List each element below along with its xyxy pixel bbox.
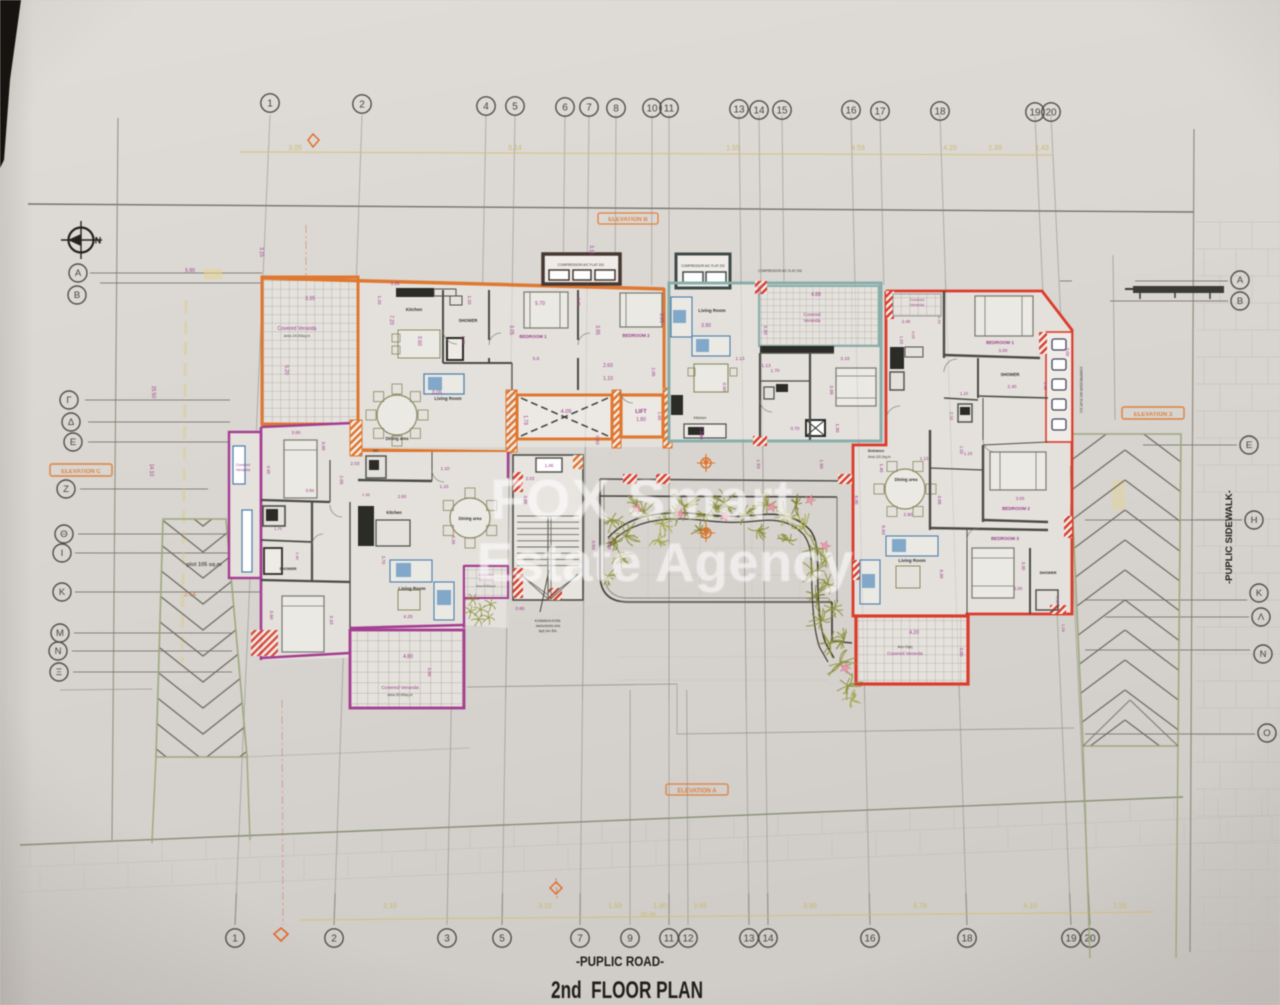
svg-text:4.59: 4.59 [851, 145, 865, 152]
svg-text:Dining area: Dining area [386, 436, 409, 441]
svg-text:2.05: 2.05 [339, 476, 344, 485]
svg-text:Covered: Covered [236, 463, 250, 467]
svg-text:3.15: 3.15 [588, 245, 594, 255]
svg-text:FOX Smart: FOX Smart [490, 468, 794, 532]
svg-text:3.90: 3.90 [701, 323, 711, 329]
svg-text:τιμή του 30ε.: τιμή του 30ε. [538, 629, 557, 633]
svg-text:3.15: 3.15 [258, 247, 264, 257]
svg-text:3: 3 [444, 933, 450, 944]
svg-text:4.80: 4.80 [403, 654, 413, 660]
svg-text:plot 105 sq.m: plot 105 sq.m [186, 562, 221, 568]
svg-text:35.34: 35.34 [640, 912, 656, 918]
svg-text:16: 16 [845, 105, 857, 116]
svg-text:5.14: 5.14 [508, 145, 522, 152]
svg-text:0.90: 0.90 [722, 383, 727, 392]
svg-text:1.50: 1.50 [608, 903, 622, 910]
svg-text:2nd FLOOR PLAN: 2nd FLOOR PLAN [551, 977, 703, 1004]
svg-text:3.70: 3.70 [381, 556, 386, 565]
svg-text:13: 13 [743, 933, 755, 944]
svg-text:19: 19 [1065, 933, 1077, 944]
svg-text:11: 11 [664, 933, 675, 944]
svg-text:M: M [56, 628, 64, 639]
svg-text:3.35: 3.35 [391, 281, 400, 286]
svg-text:1: 1 [267, 98, 273, 109]
svg-text:7.20: 7.20 [388, 315, 394, 325]
svg-text:11: 11 [664, 103, 675, 114]
svg-text:3.88: 3.88 [937, 496, 942, 505]
svg-text:9: 9 [627, 933, 633, 944]
svg-text:4.09: 4.09 [561, 409, 572, 415]
svg-text:5.20: 5.20 [283, 365, 289, 375]
svg-text:A: A [75, 268, 82, 279]
svg-text:3.05: 3.05 [576, 298, 581, 307]
svg-text:3.60: 3.60 [269, 611, 274, 620]
svg-text:1.65: 1.65 [657, 412, 662, 421]
svg-text:Θ: Θ [60, 529, 67, 540]
svg-text:ELEVATION C: ELEVATION C [61, 469, 101, 475]
svg-text:SHOWER: SHOWER [1039, 571, 1056, 575]
svg-text:3.30: 3.30 [762, 325, 768, 335]
svg-text:3.10: 3.10 [329, 616, 334, 625]
svg-text:BEDROOM 2: BEDROOM 2 [1002, 506, 1030, 511]
svg-text:1.90: 1.90 [818, 459, 824, 469]
svg-text:15: 15 [776, 105, 788, 116]
svg-text:1.90: 1.90 [653, 903, 667, 910]
svg-text:ΚΛΙΜΑΚΑ ΚΟΙΝ.: ΚΛΙΜΑΚΑ ΚΟΙΝ. [535, 619, 561, 623]
svg-text:3.00: 3.00 [959, 648, 964, 657]
svg-text:14: 14 [762, 933, 774, 944]
svg-text:Γ: Γ [66, 395, 71, 406]
svg-text:2.46: 2.46 [902, 319, 911, 324]
svg-text:WC: WC [373, 449, 380, 453]
svg-text:2.03: 2.03 [351, 461, 360, 466]
svg-text:2: 2 [331, 933, 337, 944]
svg-text:I: I [61, 548, 64, 559]
svg-text:0.95: 0.95 [266, 466, 271, 475]
svg-text:E: E [1246, 440, 1252, 451]
svg-text:3.30: 3.30 [1014, 586, 1023, 591]
svg-text:A: A [1237, 275, 1244, 286]
svg-text:17: 17 [874, 106, 886, 117]
svg-text:-PUPLIC SIDEWALK-: -PUPLIC SIDEWALK- [1224, 490, 1235, 584]
svg-text:1.70: 1.70 [771, 368, 780, 373]
svg-text:SHOWER: SHOWER [1001, 372, 1020, 377]
svg-text:Covered Veranda: Covered Veranda [381, 685, 419, 691]
svg-text:Living Room: Living Room [698, 308, 725, 313]
svg-text:BEDROOM 1: BEDROOM 1 [519, 334, 547, 339]
svg-text:Z: Z [63, 484, 69, 495]
svg-text:Veranda: Veranda [236, 468, 251, 472]
svg-text:K: K [1256, 588, 1263, 599]
svg-text:1: 1 [232, 933, 238, 944]
svg-text:0.60: 0.60 [416, 336, 422, 346]
svg-text:Living Room: Living Room [398, 586, 425, 591]
svg-text:N: N [1260, 649, 1267, 660]
svg-text:COMPRESSOR A/C FLAT 201: COMPRESSOR A/C FLAT 201 [558, 263, 605, 267]
svg-text:3.90: 3.90 [803, 903, 817, 910]
svg-text:1.65: 1.65 [899, 336, 904, 345]
svg-text:5: 5 [512, 101, 518, 112]
svg-text:3.05: 3.05 [658, 313, 664, 323]
svg-text:19: 19 [1029, 107, 1041, 118]
svg-text:Living Room: Living Room [898, 558, 925, 563]
svg-text:2.90: 2.90 [904, 512, 913, 517]
svg-text:Kitchen: Kitchen [406, 307, 423, 312]
svg-text:1.10: 1.10 [441, 466, 450, 471]
svg-text:1.35: 1.35 [362, 492, 371, 497]
svg-text:E: E [70, 437, 76, 448]
svg-text:BEDROOM 3: BEDROOM 3 [991, 536, 1019, 541]
svg-text:3.00: 3.00 [321, 442, 326, 451]
svg-text:Kitchen: Kitchen [694, 416, 707, 420]
svg-text:1.40: 1.40 [1043, 382, 1048, 391]
svg-text:5: 5 [499, 933, 505, 944]
svg-text:N: N [95, 236, 102, 246]
svg-text:1.10: 1.10 [440, 484, 449, 489]
svg-text:1.55: 1.55 [1113, 903, 1127, 910]
svg-text:1.55: 1.55 [726, 145, 740, 152]
svg-text:6.60: 6.60 [880, 525, 886, 535]
svg-text:2.05: 2.05 [651, 368, 656, 377]
svg-text:SHOWER: SHOWER [279, 567, 296, 571]
svg-text:Covered Veranda: Covered Veranda [887, 651, 923, 656]
svg-text:3.00: 3.00 [999, 348, 1008, 353]
svg-text:2.40: 2.40 [1008, 384, 1017, 389]
svg-text:1.39: 1.39 [988, 145, 1002, 152]
svg-text:3.30: 3.30 [1021, 562, 1026, 571]
svg-text:BEDROOM 1: BEDROOM 1 [986, 340, 1014, 345]
svg-text:6.36: 6.36 [451, 536, 456, 545]
svg-text:4.25: 4.25 [403, 614, 413, 620]
svg-text:14: 14 [753, 105, 765, 116]
svg-text:B: B [74, 290, 80, 301]
svg-text:0.80: 0.80 [516, 606, 525, 611]
svg-text:18: 18 [961, 933, 973, 944]
svg-text:N: N [55, 646, 62, 657]
svg-text:Estate Agency: Estate Agency [477, 531, 854, 593]
svg-text:4.20: 4.20 [909, 630, 919, 636]
svg-text:2.10: 2.10 [383, 903, 397, 910]
svg-text:3.00: 3.00 [427, 668, 432, 677]
svg-text:1.40: 1.40 [879, 464, 884, 473]
svg-text:1.13: 1.13 [920, 456, 929, 461]
svg-text:0.80: 0.80 [594, 435, 600, 445]
svg-text:1.79: 1.79 [522, 415, 528, 425]
svg-text:H: H [1251, 515, 1258, 526]
svg-text:2.60: 2.60 [398, 494, 407, 499]
svg-text:area 24.00sq.m: area 24.00sq.m [284, 334, 310, 338]
svg-text:COMPRESSOR A/C FLAT 201: COMPRESSOR A/C FLAT 201 [1079, 367, 1083, 414]
svg-text:B: B [1237, 296, 1243, 307]
svg-text:Veranda: Veranda [804, 318, 821, 323]
svg-text:Covered Veranda: Covered Veranda [278, 326, 317, 332]
svg-text:K: K [59, 587, 66, 598]
svg-text:1.50: 1.50 [699, 431, 704, 440]
svg-text:Living Room: Living Room [434, 396, 461, 401]
svg-text:COMPRESSOR A/C FLAT 202: COMPRESSOR A/C FLAT 202 [681, 264, 725, 268]
svg-text:2.20: 2.20 [937, 316, 942, 325]
svg-text:12: 12 [682, 933, 694, 944]
svg-text:Λ: Λ [1258, 612, 1265, 623]
svg-text:ELEVATION 3: ELEVATION 3 [1134, 412, 1173, 418]
svg-text:4.88: 4.88 [811, 292, 821, 298]
svg-text:3.00: 3.00 [1016, 496, 1025, 501]
svg-text:3.10: 3.10 [538, 903, 552, 910]
svg-text:3.55: 3.55 [693, 903, 707, 910]
svg-text:Entrance: Entrance [868, 449, 884, 453]
svg-text:0.05: 0.05 [432, 390, 442, 396]
svg-text:4.20: 4.20 [943, 145, 957, 152]
svg-text:4: 4 [483, 101, 489, 112]
svg-text:14.10: 14.10 [148, 464, 154, 477]
svg-text:3.05: 3.05 [288, 145, 302, 152]
svg-text:6.90: 6.90 [939, 570, 944, 579]
svg-text:7: 7 [577, 933, 583, 944]
svg-text:3.95: 3.95 [594, 325, 600, 335]
svg-text:-PUPLIC ROAD-: -PUPLIC ROAD- [576, 954, 664, 969]
svg-text:3.05: 3.05 [508, 325, 514, 335]
svg-text:8: 8 [613, 103, 619, 114]
svg-text:2.14: 2.14 [184, 592, 196, 598]
svg-text:13: 13 [733, 104, 745, 115]
svg-text:3.15: 3.15 [840, 356, 850, 362]
svg-text:3.60: 3.60 [292, 430, 301, 435]
svg-text:6.90: 6.90 [854, 496, 859, 505]
svg-text:3.00: 3.00 [1065, 348, 1070, 357]
svg-text:Ano Οψη: Ano Οψη [898, 645, 913, 649]
svg-text:Covered: Covered [910, 298, 924, 302]
svg-text:1.80: 1.80 [636, 417, 646, 423]
svg-text:Dining area: Dining area [895, 477, 918, 482]
svg-text:1.13: 1.13 [736, 356, 745, 361]
svg-text:1.43: 1.43 [1035, 145, 1049, 152]
svg-text:Covered: Covered [803, 312, 821, 317]
svg-text:20: 20 [1045, 107, 1057, 118]
svg-text:2: 2 [359, 99, 365, 110]
svg-text:2.50: 2.50 [1055, 596, 1060, 605]
svg-text:Δ: Δ [68, 417, 75, 428]
svg-text:4.10: 4.10 [1023, 903, 1037, 910]
svg-text:Veranda: Veranda [910, 303, 925, 307]
svg-text:Ξ: Ξ [56, 667, 62, 678]
svg-text:Kitchen: Kitchen [386, 510, 402, 515]
svg-text:0.84: 0.84 [306, 488, 315, 493]
svg-text:1.90: 1.90 [461, 336, 466, 345]
svg-text:σκαλοπατία από: σκαλοπατία από [536, 624, 561, 628]
svg-text:O: O [1263, 728, 1270, 739]
svg-text:1.70: 1.70 [274, 526, 283, 531]
svg-text:BEDROOM 2: BEDROOM 2 [622, 333, 650, 338]
svg-text:SHOWER: SHOWER [459, 318, 478, 323]
svg-text:0.70: 0.70 [791, 426, 800, 431]
svg-text:6: 6 [562, 102, 568, 113]
svg-text:5.70: 5.70 [535, 301, 545, 307]
svg-text:15.50: 15.50 [150, 386, 156, 399]
svg-text:1.10: 1.10 [603, 376, 613, 382]
svg-text:1.20: 1.20 [377, 296, 382, 305]
svg-text:ELEVATION A: ELEVATION A [677, 789, 717, 795]
svg-text:5.90: 5.90 [185, 268, 195, 274]
svg-text:1.10: 1.10 [964, 451, 973, 456]
svg-text:1.20: 1.20 [467, 296, 472, 305]
svg-text:18: 18 [934, 106, 946, 117]
svg-text:2.60: 2.60 [603, 363, 613, 369]
svg-text:COMPRESSOR A/C FLAT 203: COMPRESSOR A/C FLAT 203 [758, 269, 802, 273]
svg-text:5.79: 5.79 [913, 903, 927, 910]
svg-text:10: 10 [646, 103, 658, 114]
svg-text:1.50: 1.50 [959, 446, 964, 455]
svg-text:16: 16 [864, 933, 876, 944]
svg-text:Dining area: Dining area [459, 516, 482, 521]
svg-text:7: 7 [586, 102, 592, 113]
svg-text:LIFT: LIFT [635, 409, 647, 415]
svg-text:5.8: 5.8 [533, 356, 540, 361]
svg-text:ELEVATION B: ELEVATION B [608, 217, 648, 223]
svg-text:3.88: 3.88 [828, 385, 834, 395]
svg-text:3.35: 3.35 [305, 296, 315, 302]
svg-text:1.40: 1.40 [295, 552, 300, 561]
svg-text:1.10: 1.10 [960, 391, 969, 396]
svg-text:Area 120.2sq.m: Area 120.2sq.m [868, 455, 891, 459]
svg-text:1.30: 1.30 [835, 424, 840, 433]
svg-text:1.26: 1.26 [1061, 624, 1066, 633]
svg-text:area 20.00sq.m: area 20.00sq.m [388, 693, 413, 697]
svg-text:0.05: 0.05 [911, 331, 916, 340]
